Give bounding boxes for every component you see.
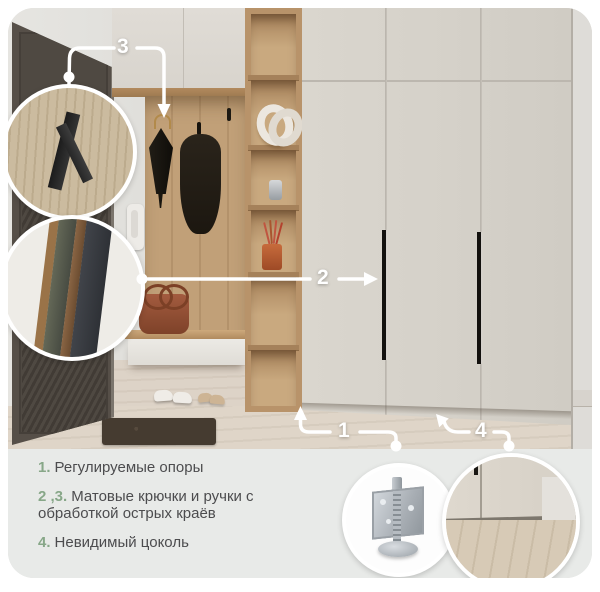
intercom-handset	[131, 210, 138, 238]
sneaker	[173, 392, 193, 404]
side-wall	[571, 8, 592, 449]
feature-text: Матовые крючки и ручки с обработкой остр…	[38, 488, 254, 523]
threaded-rod	[393, 491, 401, 545]
wardrobe-handle	[382, 230, 386, 360]
doormat-rug	[102, 418, 216, 445]
wardrobe-door-seam	[385, 8, 387, 428]
feature-text: Невидимый цоколь	[55, 534, 189, 551]
bracket-hole	[386, 519, 391, 524]
bracket-hole	[408, 505, 414, 511]
shelf-cell	[251, 350, 296, 406]
bag-handle	[159, 284, 189, 310]
plinth-floor	[446, 520, 576, 578]
feature-number: 4.	[38, 534, 51, 551]
figurine	[269, 180, 282, 200]
plinth-back-wall	[542, 477, 580, 521]
feature-item: 1.Регулируемые опоры	[38, 459, 310, 477]
product-card: 1.Регулируемые опоры 2 ,3.Матовые крючки…	[8, 8, 592, 578]
feature-item: 4.Невидимый цоколь	[38, 534, 310, 552]
baseboard	[573, 390, 592, 407]
diffuser-bottle	[262, 244, 282, 270]
leather-bag	[139, 294, 189, 334]
inset-support-leg	[342, 463, 456, 577]
bench-drawer	[128, 339, 245, 365]
shelf-cell	[251, 277, 296, 345]
feature-number: 1.	[38, 459, 51, 476]
wardrobe-handle	[477, 232, 481, 364]
sneaker	[154, 389, 174, 401]
feature-item: 2 ,3.Матовые крючки и ручки с обработкой…	[38, 488, 310, 523]
hanging-coat	[180, 134, 221, 234]
bracket-hole	[380, 499, 386, 505]
feature-list: 1.Регулируемые опоры 2 ,3.Матовые крючки…	[38, 459, 310, 563]
wardrobe-horizontal-seam	[302, 80, 571, 82]
plinth-door-seam	[480, 457, 482, 519]
wardrobe	[302, 8, 571, 428]
inset-plinth-closeup	[442, 453, 580, 578]
upper-cabinets	[112, 8, 245, 89]
callout-number-4: 4	[475, 419, 486, 443]
feature-text: Регулируемые опоры	[55, 459, 204, 476]
callout-number-3: 3	[117, 35, 128, 59]
shelf-cell	[251, 14, 296, 75]
open-shelf-column	[245, 8, 302, 412]
wardrobe-door-seam	[480, 8, 482, 428]
callout-number-2: 2	[317, 266, 328, 290]
wall-hook	[227, 108, 231, 121]
leg-round-foot	[378, 541, 418, 557]
plinth-handle-tip	[474, 459, 478, 475]
gold-hook-icon	[154, 114, 171, 129]
callout-number-1: 1	[338, 419, 349, 443]
feature-number: 2 ,3.	[38, 488, 67, 505]
cabinet-door-seam	[183, 8, 184, 88]
